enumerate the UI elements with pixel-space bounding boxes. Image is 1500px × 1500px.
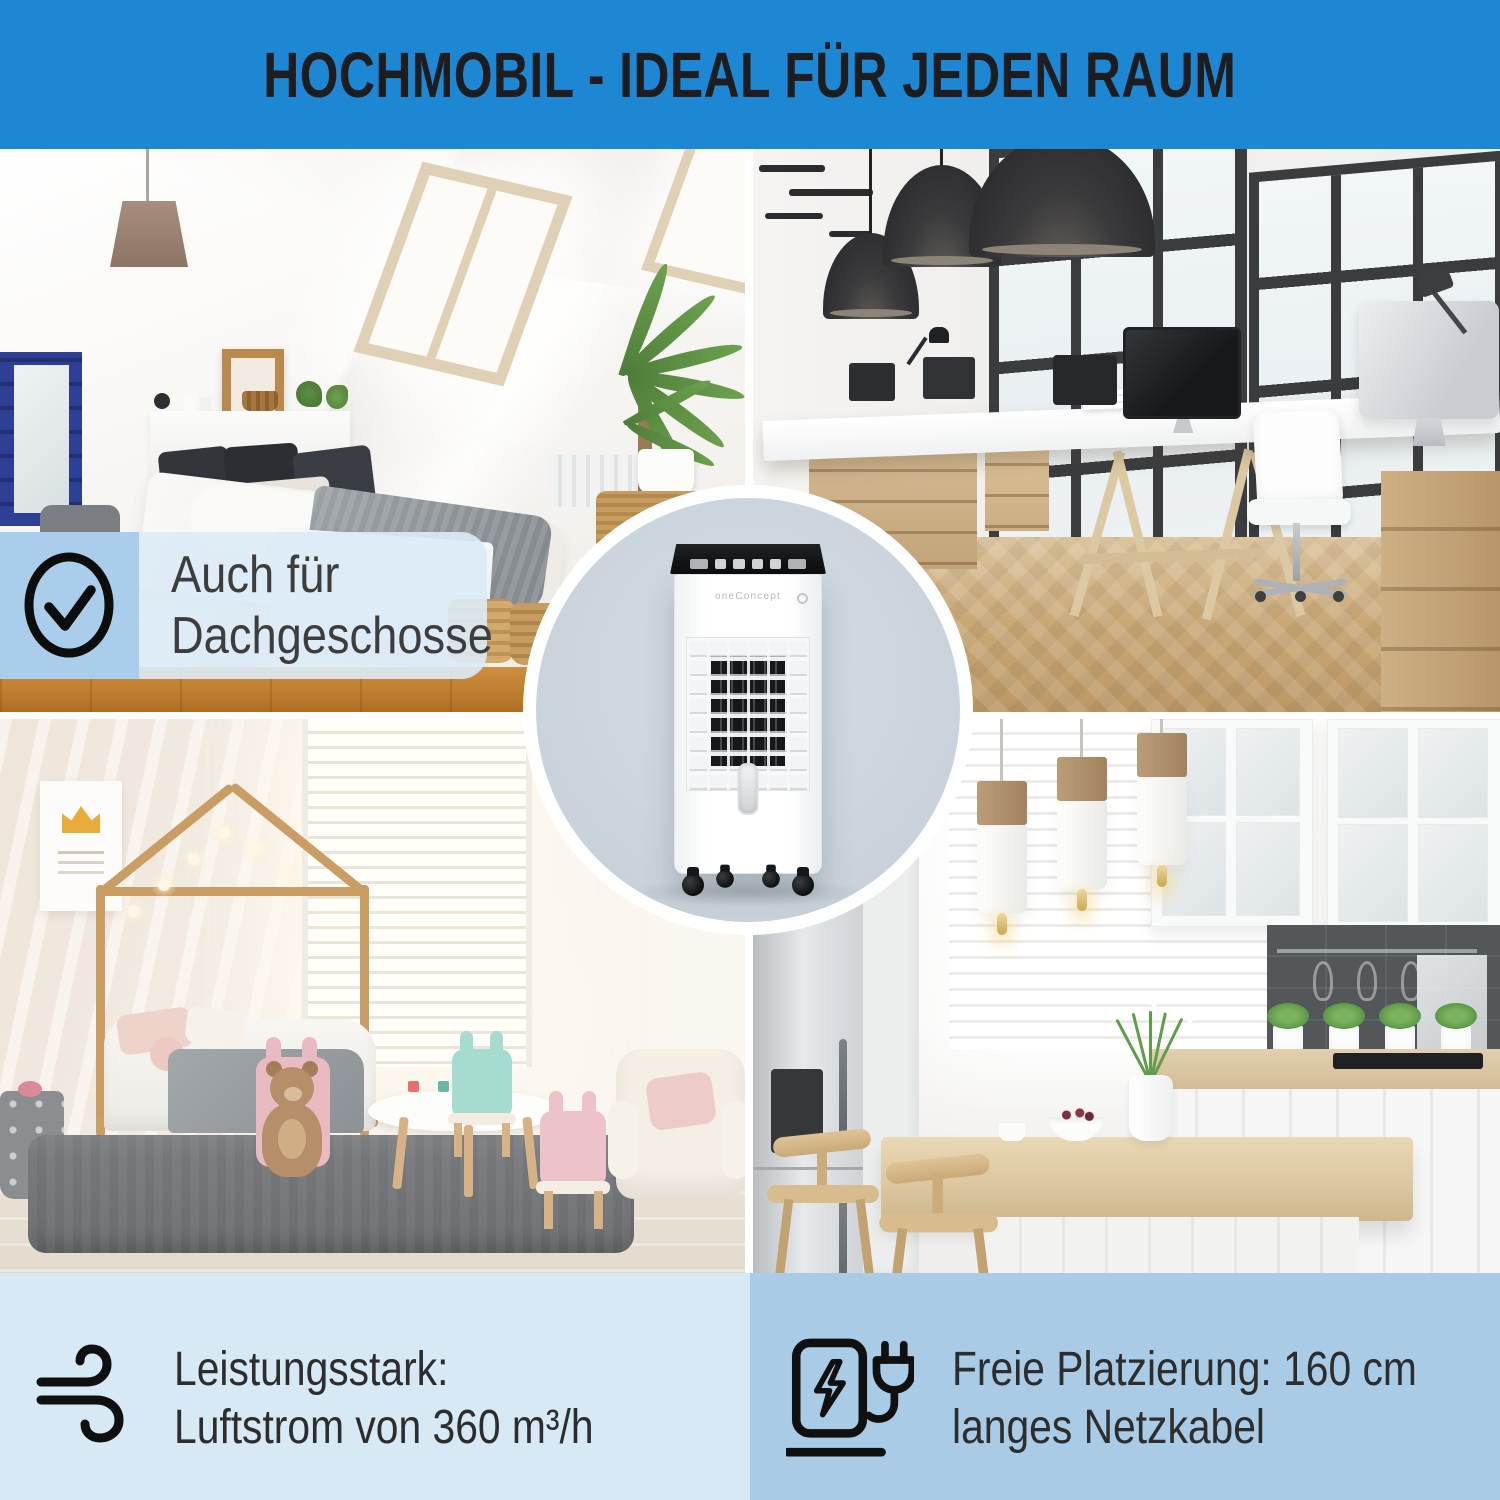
caster-wheel (682, 874, 704, 896)
crown-graphic (62, 803, 100, 833)
product-infographic: HOCHMOBIL - IDEAL FÜR JEDEN RAUM (0, 0, 1500, 1500)
island-base (979, 1217, 1359, 1273)
caster-wheel (762, 870, 780, 888)
caster-wheel (792, 874, 814, 896)
dome-pendant-lamp (969, 149, 1155, 257)
wooden-chair (773, 1133, 883, 1273)
pendant-cord (869, 149, 872, 237)
check-circle-icon (22, 550, 116, 660)
kids-chair-pink-front (540, 1111, 610, 1231)
office-chair-seat (1247, 499, 1351, 525)
utensil-rail (1277, 949, 1477, 953)
banner-title: HOCHMOBIL - IDEAL FÜR JEDEN RAUM (263, 38, 1236, 112)
charging-cable-icon (786, 1322, 914, 1468)
desk-lamp (1417, 267, 1500, 347)
armchair-pillow (645, 1071, 718, 1132)
upper-glass-cabinet (1327, 719, 1500, 933)
feature-left-line-1: Leistungsstark: (174, 1341, 594, 1399)
feature-right-line-2: langes Netzkabel (952, 1399, 1417, 1457)
badge-text-panel: Auch für Dachgeschosse (139, 532, 487, 679)
banner: HOCHMOBIL - IDEAL FÜR JEDEN RAUM (0, 0, 1500, 149)
product-circle: oneConcept (536, 498, 960, 922)
wood-cabinet (1381, 471, 1500, 712)
air-cooler-body: oneConcept (674, 574, 822, 874)
feature-text-left: Leistungsstark: Luftstrom von 360 m³/h (174, 1340, 594, 1458)
shelf-items (150, 389, 370, 413)
feature-left-line-2: Luftstrom von 360 m³/h (174, 1399, 594, 1457)
teddy-bear (262, 1067, 324, 1179)
pillow-white (184, 1006, 247, 1048)
coffee-cup (999, 1123, 1025, 1141)
office-chair-pole (1293, 523, 1300, 581)
flower-sprigs (1093, 997, 1213, 1083)
flower-vase (1129, 1075, 1173, 1141)
water-level-indicator (738, 763, 759, 815)
cooktop (1333, 1053, 1483, 1069)
monitor (849, 363, 895, 401)
product-circle-ring: oneConcept (523, 485, 973, 935)
desk-lamp (901, 327, 961, 371)
pendant-lamp (110, 201, 188, 267)
wind-icon (36, 1338, 140, 1450)
fan-opening (711, 656, 784, 765)
mosaic-mirror (0, 352, 82, 526)
plant-pot (638, 449, 694, 495)
power-indicator-icon (797, 593, 808, 604)
badge-line-1: Auch für (171, 545, 446, 606)
feature-text-right: Freie Platzierung: 160 cm langes Netzkab… (952, 1340, 1417, 1458)
control-buttons (690, 559, 806, 569)
office-chair-base (1253, 575, 1347, 601)
feature-right-line-1: Freie Platzierung: 160 cm (952, 1341, 1417, 1399)
monitor-dark (1123, 327, 1241, 419)
product-shadow (628, 878, 868, 906)
office-chair-back (1253, 409, 1344, 509)
caster-wheel (716, 870, 734, 888)
control-panel (670, 544, 826, 574)
badge-line-2: Dachgeschosse (171, 606, 446, 667)
kids-chair-mint (452, 1049, 516, 1159)
air-cooler-product: oneConcept (668, 544, 828, 896)
pendant-lamp-cord (146, 149, 149, 203)
wooden-chair (886, 1158, 1003, 1273)
monitor (1053, 355, 1117, 405)
